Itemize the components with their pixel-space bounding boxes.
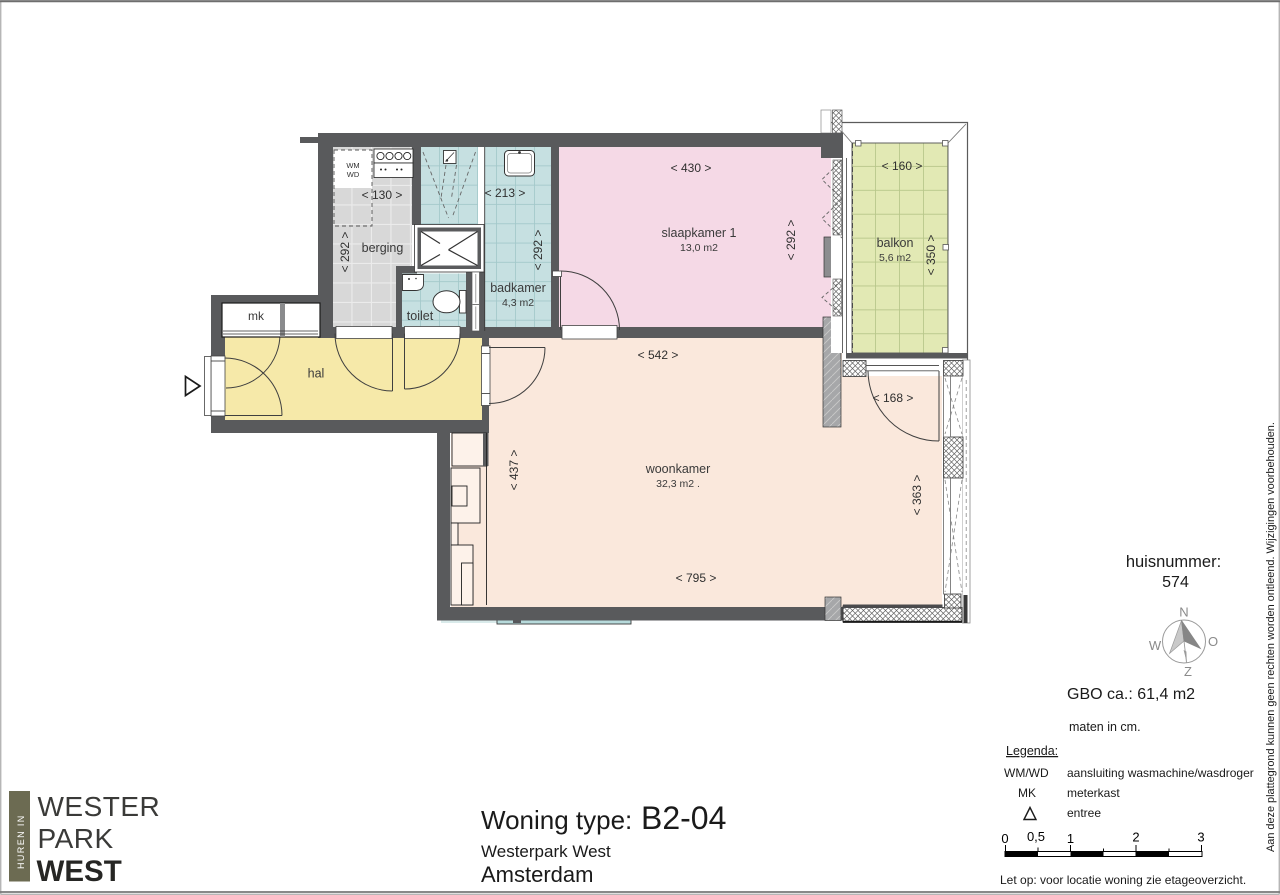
svg-text:Amsterdam: Amsterdam [481,862,593,887]
svg-text:< 292 >: < 292 > [338,232,352,273]
svg-text:berging: berging [362,241,404,255]
svg-text:aansluiting wasmachine/wasdrog: aansluiting wasmachine/wasdroger [1067,766,1254,780]
svg-text:Legenda:: Legenda: [1006,744,1058,758]
svg-text:1: 1 [1067,831,1074,846]
svg-text:< 160 >: < 160 > [882,159,923,173]
svg-text:Aan deze plattegrond kunnen ge: Aan deze plattegrond kunnen geen rechten… [1265,422,1277,852]
svg-text:entree: entree [1067,806,1101,820]
svg-text:32,3 m2 .: 32,3 m2 . [656,478,700,490]
svg-text:< 292 >: < 292 > [784,220,798,261]
svg-text:WM/WD: WM/WD [1004,766,1049,780]
svg-text:Let op: voor locatie woning: Let op: voor locatie woning zie etageove… [1000,873,1246,887]
svg-text:WM: WM [346,161,359,170]
svg-text:N: N [1179,605,1188,620]
svg-text:0: 0 [1001,831,1008,846]
svg-text:0,5: 0,5 [1027,829,1045,844]
svg-text:< 795 >: < 795 > [676,571,717,585]
svg-text:3: 3 [1197,830,1204,845]
svg-text:< 430 >: < 430 > [671,161,712,175]
svg-text:Z: Z [1184,664,1192,679]
svg-text:mk: mk [248,309,265,323]
svg-text:O: O [1208,634,1218,649]
svg-text:4,3 m2: 4,3 m2 [502,297,534,309]
svg-text:hal: hal [308,367,325,381]
svg-text:< 292 >: < 292 > [531,230,545,271]
svg-text:< 130 >: < 130 > [362,188,403,202]
svg-text:PARK: PARK [38,823,114,854]
svg-text:balkon: balkon [877,236,914,250]
svg-text:Woning type:: Woning type: [481,805,632,835]
svg-text:< 363 >: < 363 > [910,475,924,516]
svg-text:< 542 >: < 542 > [638,348,679,362]
svg-text:maten in cm.: maten in cm. [1069,720,1141,734]
svg-text:toilet: toilet [407,309,434,323]
svg-text:2: 2 [1132,830,1139,845]
svg-text:woonkamer: woonkamer [645,462,711,476]
svg-text:badkamer: badkamer [490,281,546,295]
svg-text:B2-04: B2-04 [641,800,726,836]
svg-text:13,0 m2: 13,0 m2 [680,242,718,254]
svg-text:574: 574 [1162,574,1189,591]
svg-text:WESTER: WESTER [38,791,161,822]
svg-text:WD: WD [347,170,360,179]
svg-text:< 168 >: < 168 > [873,391,914,405]
svg-text:HUREN IN: HUREN IN [16,814,26,869]
svg-text:W: W [1149,638,1162,653]
svg-text:MK: MK [1018,786,1036,800]
svg-text:< 213 >: < 213 > [485,186,526,200]
svg-text:WEST: WEST [37,855,122,888]
svg-text:Westerpark West: Westerpark West [481,842,611,861]
svg-text:< 350 >: < 350 > [924,235,938,276]
svg-text:GBO ca.: 61,4 m2: GBO ca.: 61,4 m2 [1067,686,1195,703]
svg-text:meterkast: meterkast [1067,786,1120,800]
svg-text:slaapkamer 1: slaapkamer 1 [661,226,736,240]
svg-text:huisnummer:: huisnummer: [1126,553,1221,571]
svg-text:5,6 m2: 5,6 m2 [879,252,911,264]
svg-text:< 437 >: < 437 > [507,450,521,491]
